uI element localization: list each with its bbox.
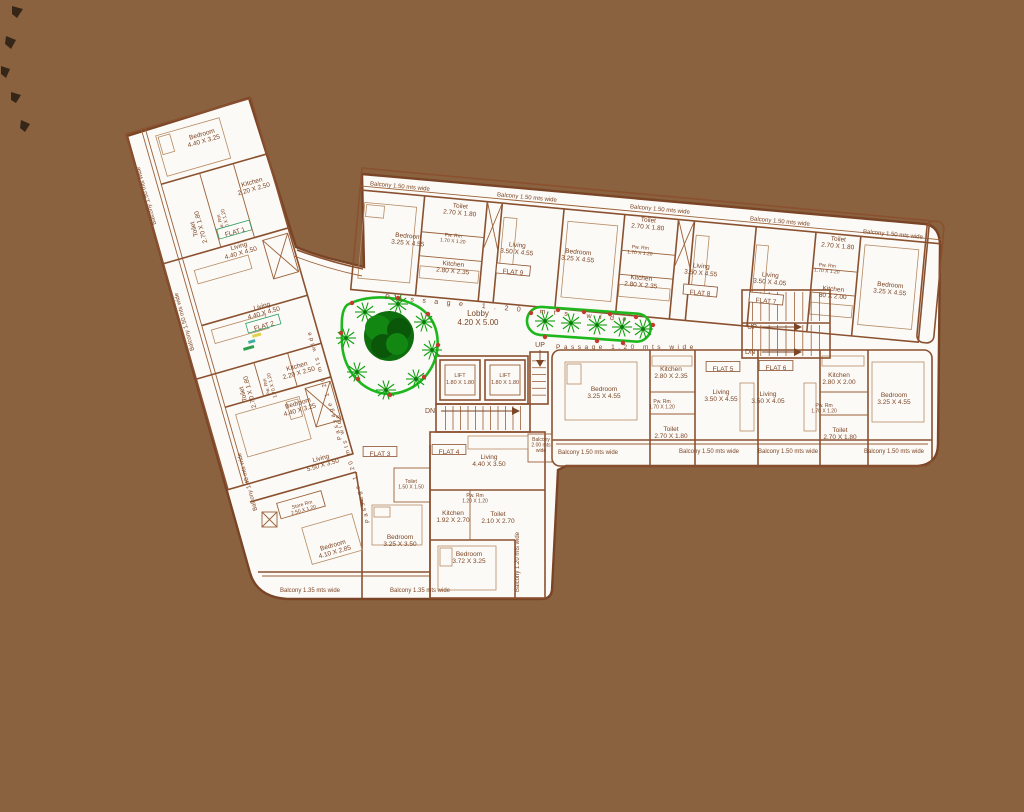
label-flat3: FLAT 3 xyxy=(363,447,397,459)
label-flat4: FLAT 4 xyxy=(432,445,466,457)
svg-text:Passage 1.20 mts wide: Passage 1.20 mts wide xyxy=(556,344,697,351)
label-bedroom-f6: Bedroom3.25 X 4.55 xyxy=(877,392,911,406)
svg-text:DN: DN xyxy=(745,349,755,356)
label-mr-balcony-1: Balcony 1.50 mts wide xyxy=(558,450,619,456)
label-dn-lobby: DN xyxy=(425,408,435,415)
svg-text:Bedroom3.25 X 3.50: Bedroom3.25 X 3.50 xyxy=(383,534,417,548)
floor-plan-drawing: Balcony 1.50 mts wideBalcony 1.50 mts wi… xyxy=(0,0,1024,812)
svg-text:Bedroom3.25 X 4.55: Bedroom3.25 X 4.55 xyxy=(877,392,911,406)
svg-text:FLAT 4: FLAT 4 xyxy=(439,449,460,456)
planter-dot xyxy=(388,393,392,397)
label-flat5: FLAT 5 xyxy=(706,362,740,374)
svg-text:DN: DN xyxy=(425,408,435,415)
svg-text:Kitchen80 X 2.00: Kitchen80 X 2.00 xyxy=(818,285,847,302)
svg-text:Balcony 1.50 mts wide: Balcony 1.50 mts wide xyxy=(758,449,819,455)
planter-dot xyxy=(356,377,360,381)
planter-dot xyxy=(651,323,655,327)
planter-dot xyxy=(350,301,354,305)
label-bedroom-f5: Bedroom3.25 X 4.55 xyxy=(587,386,621,400)
svg-text:Bedroom3.72 X 3.25: Bedroom3.72 X 3.25 xyxy=(452,551,486,565)
label-flat6: FLAT 6 xyxy=(759,361,793,373)
label-up-right: UP xyxy=(747,324,757,331)
shade-tree-icon xyxy=(364,311,414,361)
svg-text:UP: UP xyxy=(535,342,545,349)
planter-dot xyxy=(339,331,343,335)
svg-text:Balcony 1.35 mts wide: Balcony 1.35 mts wide xyxy=(280,588,341,594)
label-balcony-bottom-2: Balcony 1.35 mts wide xyxy=(390,588,451,594)
label-mr-balcony-2: Balcony 1.50 mts wide xyxy=(679,449,740,455)
svg-text:UP: UP xyxy=(747,324,757,331)
svg-text:Balcony 1.50 mts wide: Balcony 1.50 mts wide xyxy=(864,449,925,455)
svg-text:Balcony 1.35 mts wide: Balcony 1.35 mts wide xyxy=(390,588,451,594)
svg-text:FLAT 6: FLAT 6 xyxy=(766,365,787,372)
planter-dot xyxy=(595,339,599,343)
label-passage-mid: Passage 1.20 mts wide xyxy=(556,344,697,351)
label-balcony-f4-right: Balcony 1.20 mts wide xyxy=(515,531,521,592)
label-balcony-bottom-1: Balcony 1.35 mts wide xyxy=(280,588,341,594)
planter-dot xyxy=(426,312,430,316)
floor-plan-canvas: Balcony 1.50 mts wideBalcony 1.50 mts wi… xyxy=(0,0,1024,812)
svg-text:Balcony 1.50 mts wide: Balcony 1.50 mts wide xyxy=(558,450,619,456)
planter-dot xyxy=(543,335,547,339)
label-bedroom-f3b: Bedroom3.25 X 3.50 xyxy=(383,534,417,548)
svg-text:FLAT 3: FLAT 3 xyxy=(370,451,391,458)
planter-dot xyxy=(436,343,440,347)
label-mr-balcony-3: Balcony 1.50 mts wide xyxy=(758,449,819,455)
label-dn-right: DN xyxy=(745,349,755,356)
label-mr-balcony-4: Balcony 1.50 mts wide xyxy=(864,449,925,455)
svg-text:Bedroom3.25 X 4.55: Bedroom3.25 X 4.55 xyxy=(587,386,621,400)
planter-dot xyxy=(422,375,426,379)
label-up-lobby: UP xyxy=(535,342,545,349)
label-bedroom-f4: Bedroom3.72 X 3.25 xyxy=(452,551,486,565)
label-kitchen-f7: Kitchen80 X 2.00 xyxy=(818,285,847,302)
svg-text:FLAT 5: FLAT 5 xyxy=(713,366,734,373)
svg-text:Balcony 1.50 mts wide: Balcony 1.50 mts wide xyxy=(679,449,740,455)
svg-text:Balcony 1.20 mts wide: Balcony 1.20 mts wide xyxy=(515,531,521,592)
